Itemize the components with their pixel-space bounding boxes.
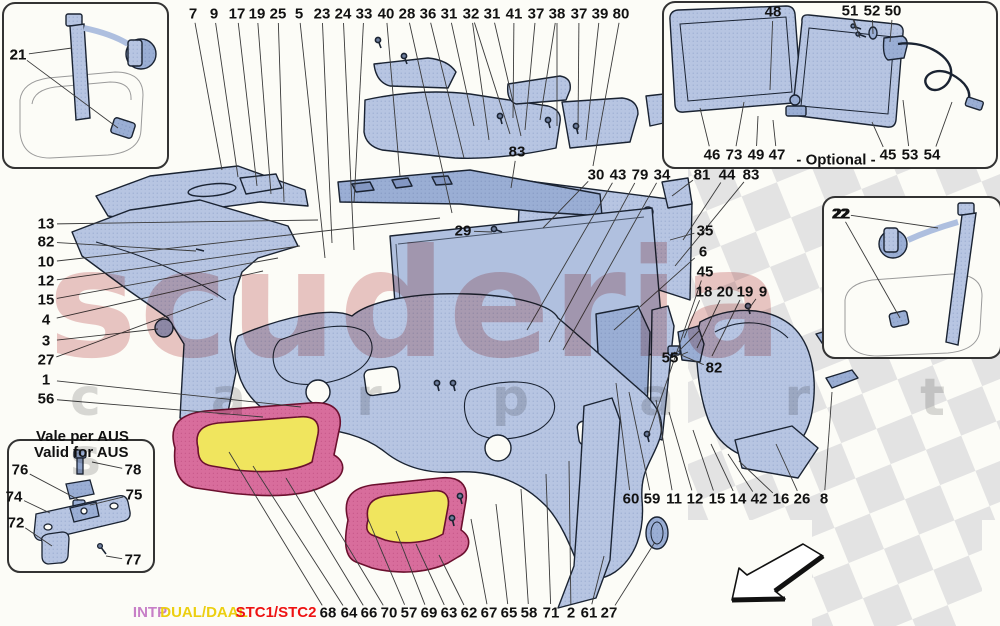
callout-50: 50 [885, 3, 902, 20]
callout-43: 43 [610, 167, 627, 184]
callout-37: 37 [528, 6, 545, 23]
callout-26: 26 [794, 491, 811, 508]
callout-52: 52 [864, 3, 881, 20]
callout-31: 31 [484, 6, 501, 23]
diagram-canvas [0, 0, 1000, 626]
callout-77: 77 [125, 552, 142, 569]
callout-44: 44 [719, 167, 736, 184]
callout-10: 10 [38, 254, 55, 271]
callout-66: 66 [361, 605, 378, 622]
callout-18: 18 [696, 284, 713, 301]
callout-25: 25 [270, 6, 287, 23]
callout-6: 6 [699, 244, 707, 261]
callout-19: 19 [249, 6, 266, 23]
callout-63: 63 [441, 605, 458, 622]
callout-48: 48 [765, 4, 782, 21]
optional-box-label: - Optional - [796, 152, 875, 169]
grommet-cap [155, 319, 173, 337]
callout-61: 61 [581, 605, 598, 622]
callout-76: 76 [12, 462, 29, 479]
callout-42: 42 [751, 491, 768, 508]
callout-69: 69 [421, 605, 438, 622]
callout-2: 2 [567, 605, 575, 622]
callout-17: 17 [229, 6, 246, 23]
callout-53: 53 [902, 147, 919, 164]
callout-21: 21 [10, 47, 27, 64]
callout-78: 78 [125, 462, 142, 479]
callout-5: 5 [295, 6, 303, 23]
callout-8: 8 [820, 491, 828, 508]
callout-28: 28 [399, 6, 416, 23]
callout-55: 55 [662, 350, 679, 367]
callout-64: 64 [341, 605, 358, 622]
callout-80: 80 [613, 6, 630, 23]
callout-23: 23 [314, 6, 331, 23]
callout-20: 20 [717, 284, 734, 301]
callout-45: 45 [697, 264, 714, 281]
callout-19: 19 [737, 284, 754, 301]
callout-27: 27 [601, 605, 618, 622]
callout-47: 47 [769, 147, 786, 164]
callout-60: 60 [623, 491, 640, 508]
callout-68: 68 [320, 605, 337, 622]
callout-81: 81 [694, 167, 711, 184]
callout-51: 51 [842, 3, 859, 20]
callout-3: 3 [42, 333, 50, 350]
callout-27: 27 [38, 352, 55, 369]
callout-22: 22 [832, 206, 849, 223]
seat-cushion-right [346, 478, 469, 572]
callout-29: 29 [455, 223, 472, 240]
callout-65: 65 [501, 605, 518, 622]
callout-40: 40 [378, 6, 395, 23]
callout-49: 49 [748, 147, 765, 164]
callout-13: 13 [38, 216, 55, 233]
aus-box-title-english: Valid for AUS [34, 444, 128, 461]
callout-41: 41 [506, 6, 523, 23]
callout-67: 67 [481, 605, 498, 622]
inset-belt-left [3, 3, 168, 168]
callout-33: 33 [356, 6, 373, 23]
callout-71: 71 [543, 605, 560, 622]
callout-34: 34 [654, 167, 671, 184]
callout-83: 83 [743, 167, 760, 184]
callout-15: 15 [709, 491, 726, 508]
callout-36: 36 [420, 6, 437, 23]
callout-31: 31 [441, 6, 458, 23]
callout-16: 16 [773, 491, 790, 508]
callout-79: 79 [632, 167, 649, 184]
callout-9: 9 [759, 284, 767, 301]
callout-62: 62 [461, 605, 478, 622]
callout-72: 72 [8, 515, 25, 532]
callout-7: 7 [189, 6, 197, 23]
callout-37: 37 [571, 6, 588, 23]
oval-grommet [646, 517, 668, 549]
callout-59: 59 [644, 491, 661, 508]
callout-70: 70 [381, 605, 398, 622]
aus-box-title-italian: Vale per AUS [36, 428, 129, 445]
callout-54: 54 [924, 147, 941, 164]
callout-1: 1 [42, 372, 50, 389]
callout-73: 73 [726, 147, 743, 164]
callout-38: 38 [549, 6, 566, 23]
parts-diagram-page: scuderia c a r p a r t s 21 22 - Optiona… [0, 0, 1000, 626]
callout-15: 15 [38, 292, 55, 309]
inset-optional [663, 2, 997, 168]
callout-12: 12 [38, 273, 55, 290]
callout-56: 56 [38, 391, 55, 408]
direction-arrow [732, 544, 823, 600]
optional-panel-left [670, 6, 801, 112]
callout-30: 30 [588, 167, 605, 184]
callout-45: 45 [880, 147, 897, 164]
callout-82: 82 [38, 234, 55, 251]
callout-58: 58 [521, 605, 538, 622]
callout-75: 75 [126, 487, 143, 504]
callout-32: 32 [463, 6, 480, 23]
callout-39: 39 [592, 6, 609, 23]
callout-14: 14 [730, 491, 747, 508]
callout-46: 46 [704, 147, 721, 164]
legend-stc1-stc2: STC1/STC2 [236, 604, 317, 621]
callout-74: 74 [6, 489, 23, 506]
mounting-rail [338, 170, 602, 216]
callout-82: 82 [706, 360, 723, 377]
aus-rubber-block [42, 532, 69, 564]
callout-24: 24 [335, 6, 352, 23]
callout-9: 9 [210, 6, 218, 23]
callout-12: 12 [687, 491, 704, 508]
callout-11: 11 [666, 491, 682, 508]
callout-83: 83 [509, 144, 526, 161]
callout-4: 4 [42, 312, 50, 329]
callout-35: 35 [697, 223, 714, 240]
callout-57: 57 [401, 605, 418, 622]
